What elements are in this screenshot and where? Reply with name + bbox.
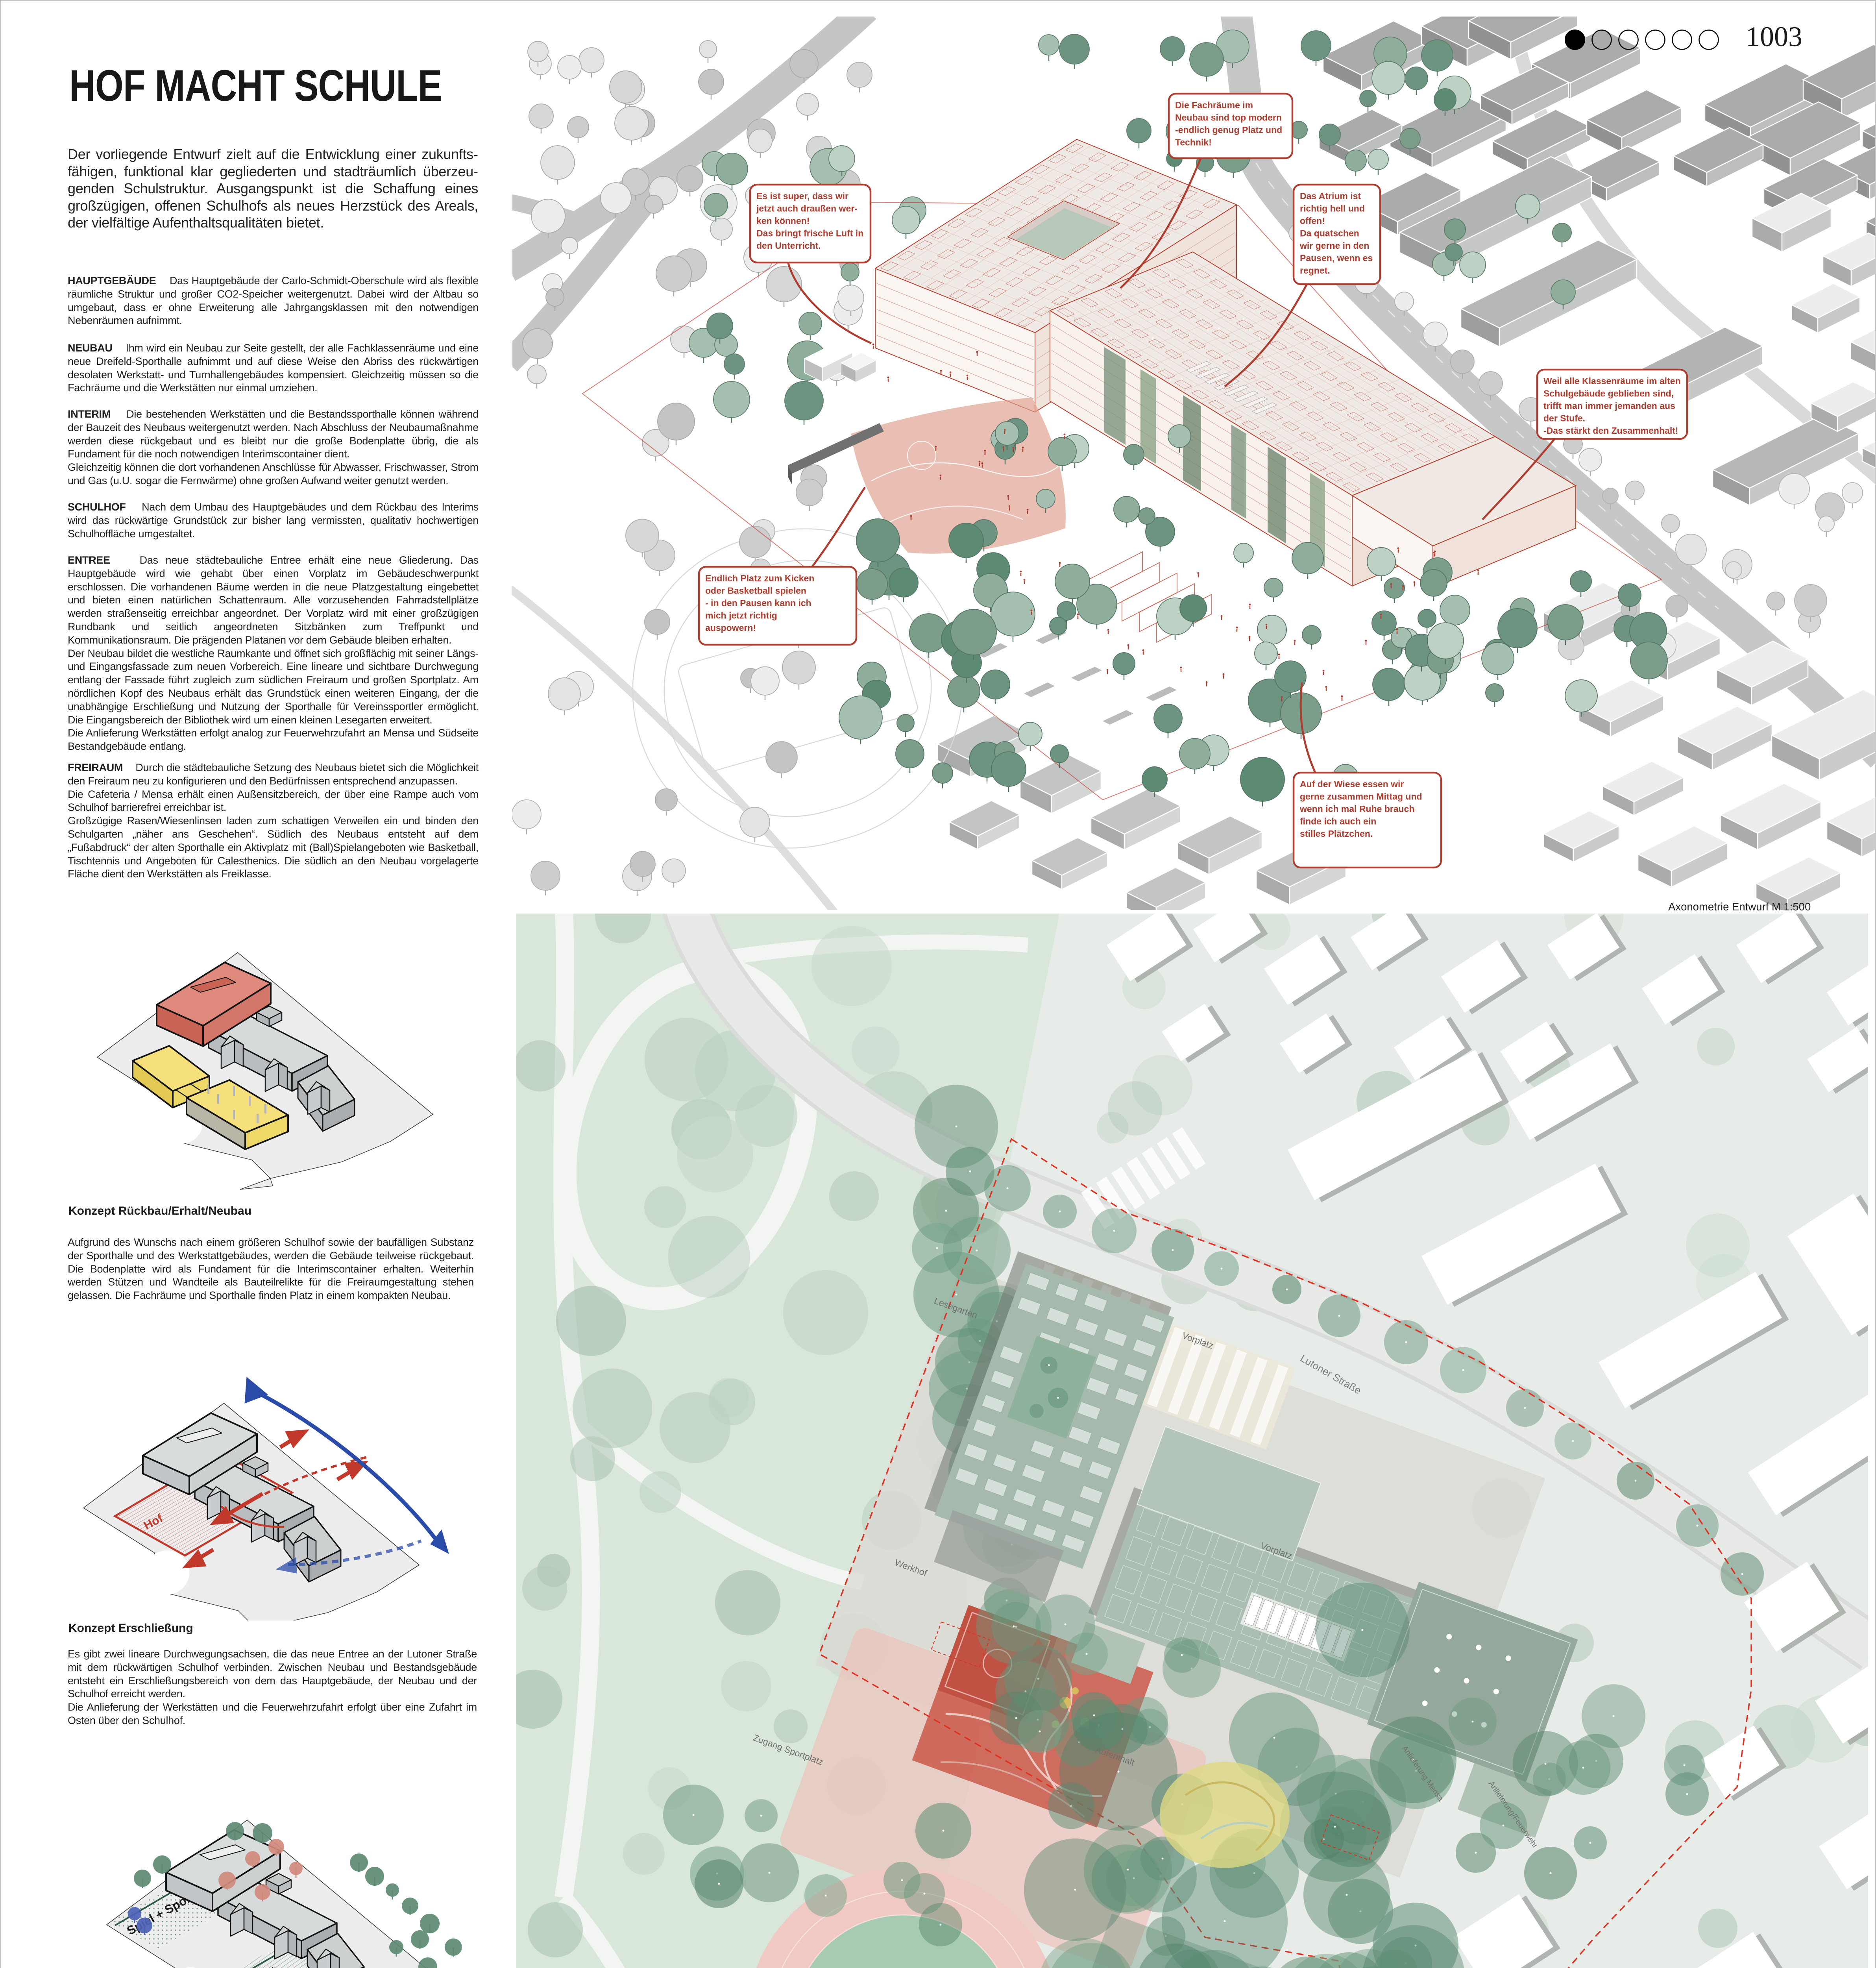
svg-text:wenn ich mal Ruhe brauch: wenn ich mal Ruhe brauch	[1299, 804, 1414, 814]
svg-text:Neubau sind top modern: Neubau sind top modern	[1175, 113, 1282, 123]
svg-text:der Stufe.: der Stufe.	[1543, 413, 1585, 424]
svg-text:trifft man immer jemanden aus: trifft man immer jemanden aus	[1543, 401, 1675, 411]
svg-text:Da quatschen: Da quatschen	[1300, 228, 1359, 239]
svg-text:Weil alle Klassenräume im alte: Weil alle Klassenräume im alten	[1543, 376, 1681, 386]
svg-text:Schulgebäude geblieben sind,: Schulgebäude geblieben sind,	[1543, 388, 1674, 399]
svg-text:Das bringt frische Luft in: Das bringt frische Luft in	[756, 228, 863, 239]
svg-text:- in den Pausen kann ich: - in den Pausen kann ich	[705, 598, 811, 608]
svg-text:Technik!: Technik!	[1175, 137, 1212, 148]
svg-text:mich jetzt richtig: mich jetzt richtig	[705, 610, 777, 621]
svg-text:Pausen, wenn es: Pausen, wenn es	[1300, 253, 1373, 263]
svg-text:Auf der Wiese essen wir: Auf der Wiese essen wir	[1300, 779, 1404, 789]
svg-text:Es ist super, dass wir: Es ist super, dass wir	[756, 191, 848, 201]
svg-text:ken können!: ken können!	[756, 216, 810, 226]
svg-text:den Unterricht.: den Unterricht.	[756, 240, 821, 251]
svg-text:-Das stärkt den Zusammenhalt!: -Das stärkt den Zusammenhalt!	[1543, 425, 1678, 436]
svg-text:stilles Plätzchen.: stilles Plätzchen.	[1300, 829, 1373, 839]
svg-text:offen!: offen!	[1300, 216, 1325, 226]
svg-text:oder Basketball spielen: oder Basketball spielen	[705, 586, 806, 596]
svg-text:Die Fachräume im: Die Fachräume im	[1175, 100, 1253, 110]
svg-text:regnet.: regnet.	[1300, 265, 1330, 276]
svg-text:finde ich auch ein: finde ich auch ein	[1300, 816, 1376, 827]
svg-text:Endlich Platz zum Kicken: Endlich Platz zum Kicken	[705, 573, 814, 583]
svg-text:-endlich genug Platz und: -endlich genug Platz und	[1175, 125, 1282, 135]
svg-text:richtig hell und: richtig hell und	[1300, 203, 1365, 214]
svg-text:auspowern!: auspowern!	[705, 623, 756, 633]
svg-text:Das Atrium ist: Das Atrium ist	[1300, 191, 1361, 201]
svg-text:wir gerne in den: wir gerne in den	[1299, 240, 1369, 251]
svg-text:gerne zusammen Mittag und: gerne zusammen Mittag und	[1300, 792, 1422, 802]
svg-text:jetzt auch draußen wer-: jetzt auch draußen wer-	[756, 203, 858, 214]
